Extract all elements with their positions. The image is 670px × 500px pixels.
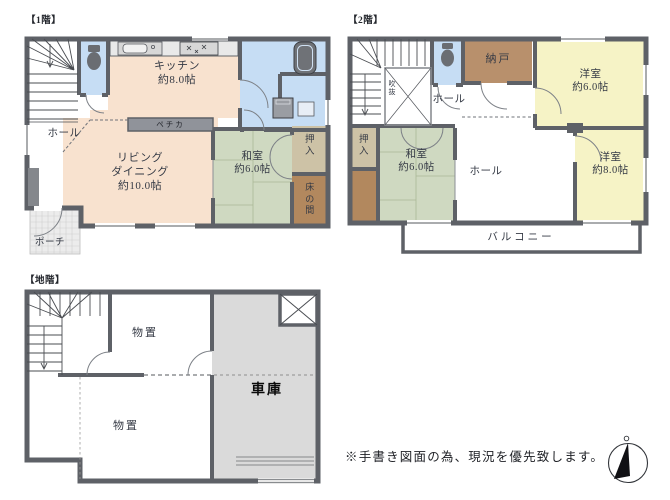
floor2-washitsu-label: 和室 約6.0帖 [378, 148, 455, 175]
floor1-pechka-label: ペチカ [128, 118, 213, 131]
floor1-oshiire-label: 押 入 [292, 134, 328, 158]
toilet-icon [87, 45, 101, 70]
floor2-oshiire-label: 押 入 [350, 134, 378, 158]
kitchen-counter [110, 41, 238, 56]
stove-icon [180, 42, 218, 55]
floor1-hall-label: ホール [34, 127, 94, 140]
floorplan-sheet: 【1階】 ホール キッチン 約8.0帖 ペチカ リビング ダイニング 約10.0… [0, 0, 670, 500]
floor1-washitsu-label: 和室 約6.0帖 [213, 150, 292, 177]
stairs-icon [27, 292, 100, 375]
floor2-nando-label: 納戸 [465, 52, 532, 66]
compass-north-icon [602, 427, 654, 487]
floor1-kitchen-label: キッチン 約8.0帖 [122, 59, 232, 87]
door-swings [87, 351, 212, 375]
basement-garage-label: 車庫 [232, 382, 302, 400]
entry-step [28, 168, 39, 206]
floor2-title: 【2階】 [348, 12, 383, 26]
floor1-plan: 【1階】 ホール キッチン 約8.0帖 ペチカ リビング ダイニング 約10.0… [22, 10, 337, 262]
floor1-tokonoma-label: 床 の 間 [292, 182, 328, 217]
floor1-porch-label: ポーチ [24, 237, 76, 249]
basement-plan: 【地階】 物置 物置 車庫 [22, 272, 337, 494]
floor1-title: 【1階】 [26, 12, 61, 26]
stairs-icon [27, 39, 78, 122]
kitchen-sink-icon [118, 42, 162, 55]
floor2-hall-lower-label: ホール [450, 165, 522, 178]
floor2-youshitsu6-label: 洋室 約6.0帖 [535, 68, 646, 95]
floor2-drawing [343, 10, 658, 260]
basement-title: 【地階】 [25, 272, 65, 286]
floor2-plan: 【2階】 納戸 洋室 約6.0帖 吹 抜 ホール 押 入 和室 約6.0帖 ホー… [343, 10, 658, 260]
toilet-icon [441, 43, 454, 67]
floor1-living-label: リビング ダイニング 約10.0帖 [82, 151, 198, 193]
floor2-youshitsu8-label: 洋室 約8.0帖 [575, 151, 646, 178]
floor2-balcony-label: バルコニー [451, 231, 591, 244]
floor2-hall-upper-label: ホール [418, 93, 480, 106]
shaft-box [280, 294, 317, 325]
floor2-fukinuke-label: 吹 抜 [384, 80, 400, 96]
basement-storage-lower-label: 物置 [91, 419, 161, 433]
footnote: ※手書き図面の為、現況を優先致します。 [345, 446, 607, 465]
bathtub-icon [294, 42, 316, 74]
basement-storage-upper-label: 物置 [110, 326, 180, 340]
